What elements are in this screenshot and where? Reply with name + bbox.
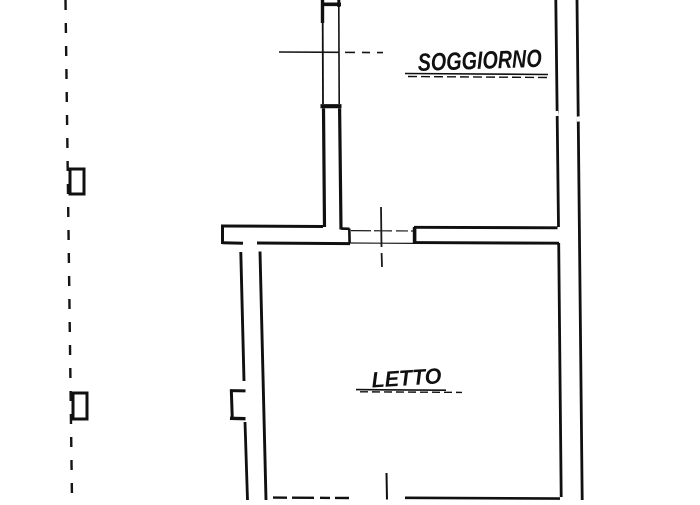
svg-text:LETTO: LETTO [371,363,442,392]
svg-text:SOGGIORNO: SOGGIORNO [417,45,542,77]
